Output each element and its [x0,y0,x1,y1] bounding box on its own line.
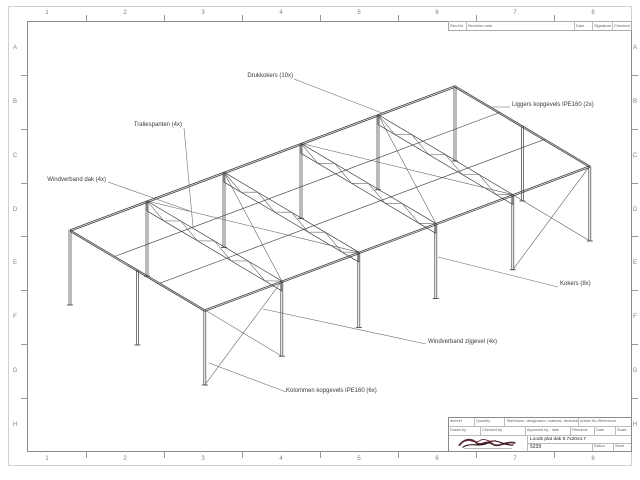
titleblock-header: Quantity [475,418,505,426]
revision-col-header: Revision note [467,22,575,30]
grid-col-label: 5 [320,7,398,20]
titleblock-header: Scale [616,427,631,435]
grid-col-label: 6 [398,453,476,466]
label-traliespanten: Traliespanten (4x) [134,122,182,128]
titleblock-header: Itemref [449,418,475,426]
grid-col-label: 1 [8,7,86,20]
grid-col-label: 3 [164,453,242,466]
grid-col-label: 1 [8,453,86,466]
revision-col-header: Date [575,22,593,30]
label-liggers-kopgevels: Liggers kopgevels IPE160 (2x) [512,102,594,108]
grid-row-label: E [8,236,22,290]
grid-col-label: 6 [398,7,476,20]
grid-col-label: 5 [320,453,398,466]
revision-table: Rev.No Revision note Date Signature Chec… [448,21,632,31]
grid-col-label: 2 [86,453,164,466]
label-kolommen-kopgevels: Kolommen kopgevels IPE160 (6x) [286,388,377,394]
grid-row-label: C [8,129,22,183]
company-logo [449,436,528,451]
label-kokers: Kokers (8x) [560,281,591,287]
drawing-number: 5239 [528,444,592,451]
grid-col-label: 7 [476,453,554,466]
grid-col-label: 8 [554,7,632,20]
grid-row-label: F [8,290,22,344]
grid-row-label: A [8,21,22,75]
drawing-sheet: { "sheet": { "grid_columns": ["1","2","3… [0,0,640,480]
grid-row-label: C [630,129,640,183]
grid-col-label: 3 [164,7,242,20]
grid-row-label: D [630,183,640,237]
drawing-title: Loods plat dak 9.7x20x4.7 [528,436,631,444]
logo-scribble-icon [449,436,528,451]
grid-row-label: F [630,290,640,344]
grid-col-label: 4 [242,453,320,466]
titleblock-header: Drawn by [449,427,481,435]
label-windverband-zijgevel: Windverband zijgevel (4x) [428,339,497,345]
grid-col-label: 7 [476,7,554,20]
grid-col-label: 4 [242,7,320,20]
titleblock-header: Filename [571,427,595,435]
label-drukkokers: Drukkokers (10x) [247,73,293,79]
titleblock-header: Checked by [481,427,526,435]
grid-row-label: H [8,398,22,452]
grid-row-label: B [8,75,22,129]
title-block: Itemref Quantity Title/Name, designation… [448,417,632,452]
label-windverband-dak: Windverband dak (4x) [47,177,106,183]
edition-label: Edition [592,444,613,451]
sheet-label: Sheet [613,444,631,451]
revision-col-header: Checked [613,22,631,30]
titleblock-header: Title/Name, designation, material, dimen… [505,418,579,426]
grid-row-label: E [630,236,640,290]
grid-col-label: 2 [86,7,164,20]
grid-row-label: B [630,75,640,129]
revision-col-header: Rev.No [449,22,467,30]
grid-row-label: G [630,344,640,398]
revision-col-header: Signature [593,22,613,30]
grid-row-label: D [8,183,22,237]
grid-row-label: G [8,344,22,398]
titleblock-header: Approved by - date [526,427,571,435]
grid-col-label: 8 [554,453,632,466]
titleblock-header: Date [595,427,616,435]
titleblock-header: Article No./Reference [579,418,631,426]
